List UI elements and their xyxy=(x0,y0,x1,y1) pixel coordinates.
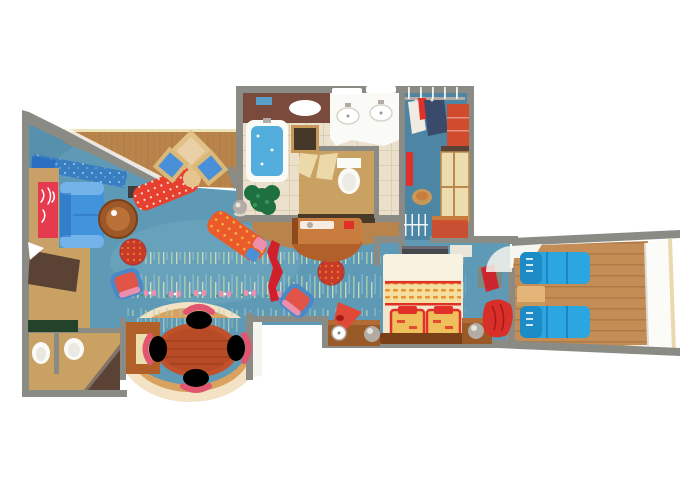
table-cup xyxy=(111,210,117,216)
mirror xyxy=(291,125,319,153)
sphere-lamp-right xyxy=(468,323,484,339)
headboard xyxy=(380,333,466,344)
closet-stool xyxy=(412,189,432,205)
coffee-table xyxy=(99,200,137,238)
bathtub xyxy=(246,118,288,182)
tub-faucet xyxy=(263,118,271,123)
sphere-lamp-left xyxy=(364,326,380,342)
red-pouf-2 xyxy=(318,259,344,285)
red-armchair xyxy=(483,299,513,337)
counter-green-top xyxy=(28,320,78,332)
console-red-item xyxy=(344,221,354,229)
double-sink-vanity xyxy=(330,86,399,146)
bathroom-bottom-wall-left xyxy=(236,215,298,222)
red-scarf xyxy=(406,152,413,186)
south-step-wall xyxy=(322,316,328,344)
bathroom-window xyxy=(256,97,272,105)
dining-chair-bottom xyxy=(183,369,209,390)
powder-room-partition xyxy=(54,330,59,374)
floor-lamp xyxy=(233,200,247,217)
balcony-railing-line xyxy=(60,129,238,132)
dining-table xyxy=(156,323,238,377)
floor-plan-image xyxy=(0,0,680,486)
bed-foot-band xyxy=(383,254,463,282)
powder-room-bottom-wall xyxy=(22,390,127,397)
bed-pillow-right xyxy=(427,306,460,336)
floor-plan-svg xyxy=(0,0,680,486)
sun-lounger-top xyxy=(520,252,590,284)
balcony-side-table xyxy=(517,286,545,306)
hanging-clothes-navy xyxy=(424,100,448,136)
alarm-clock xyxy=(332,326,346,340)
wall-art xyxy=(38,182,58,238)
bay-left-wall xyxy=(120,318,126,380)
left-wall xyxy=(22,112,29,395)
entry-console xyxy=(292,218,362,262)
living-south-wall xyxy=(250,316,328,322)
double-bed xyxy=(380,254,466,344)
bed-pillow-left xyxy=(391,306,424,336)
closet-shelf-dark xyxy=(441,146,469,152)
closet-divider-wall xyxy=(399,90,405,253)
console-kettle xyxy=(307,222,313,228)
red-shelving xyxy=(447,104,469,148)
toilet-compartment-wall-v xyxy=(374,146,379,218)
blue-sofa xyxy=(60,182,104,248)
bedroom-left-wall-stub xyxy=(374,236,380,266)
toilet xyxy=(337,158,361,194)
console-tray xyxy=(300,221,334,229)
carpet-streaks-1 xyxy=(126,252,246,316)
bay-right-wall-face xyxy=(253,316,262,378)
sun-lounger-bottom xyxy=(520,306,590,338)
ceiling-light xyxy=(289,100,321,116)
red-pouf-1 xyxy=(120,239,146,265)
